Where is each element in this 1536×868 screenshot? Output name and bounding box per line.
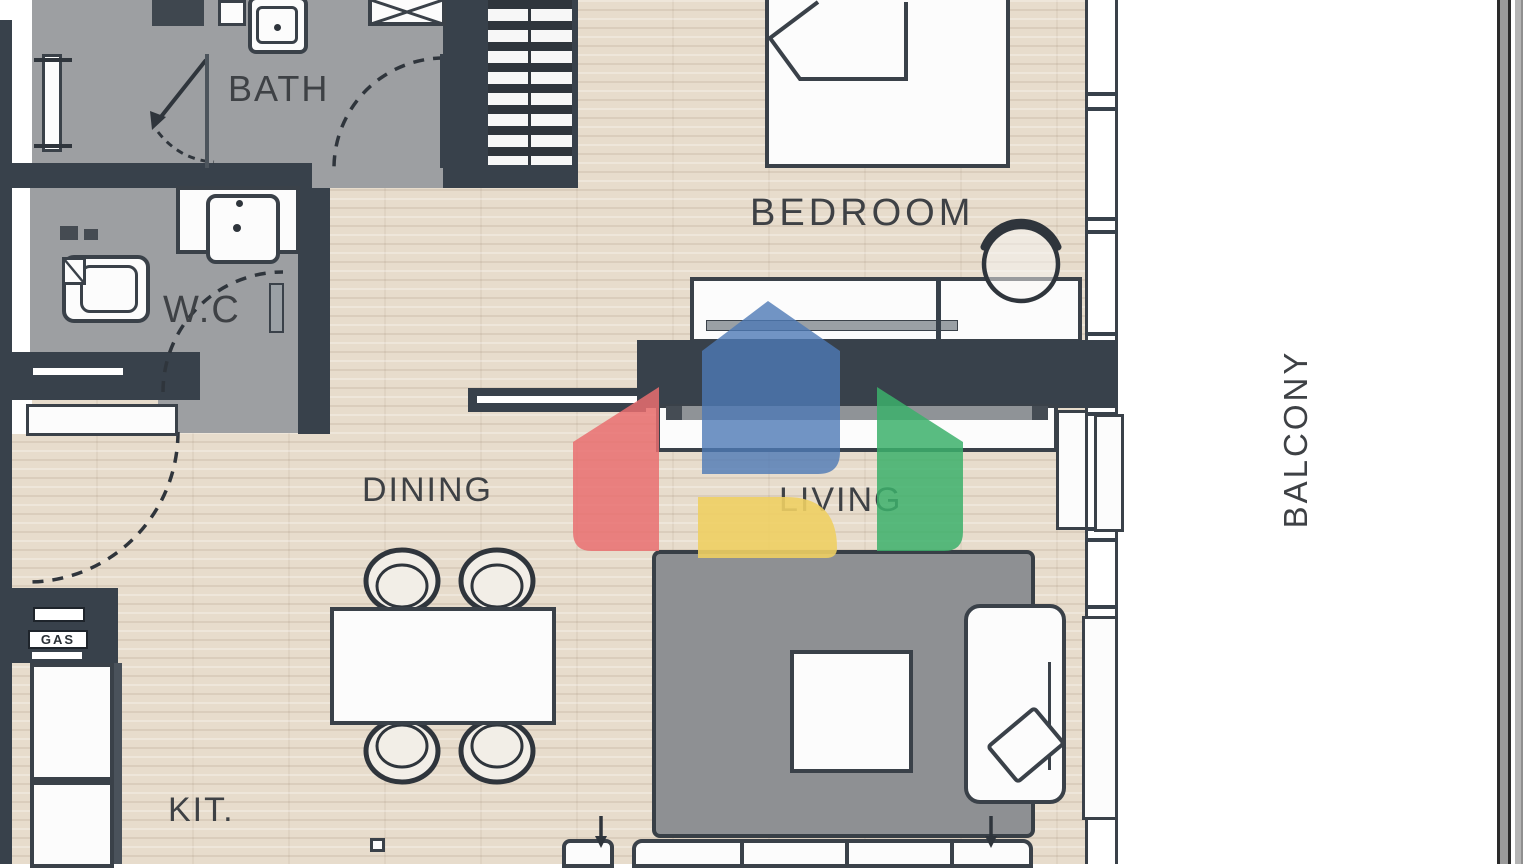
bed bbox=[765, 0, 1010, 168]
radiator-bar bbox=[34, 144, 72, 148]
bath-door-leaf bbox=[440, 54, 447, 168]
toilet-bowl bbox=[80, 265, 138, 313]
entry-shelf bbox=[33, 368, 123, 375]
sofa-cushion-seam bbox=[845, 843, 849, 868]
wc-flush-button bbox=[60, 226, 78, 240]
wall-entry bbox=[0, 352, 200, 400]
entry-door-leaf bbox=[26, 404, 178, 436]
wardrobe-rod bbox=[706, 320, 958, 331]
balcony-railing bbox=[1521, 0, 1523, 864]
wc-door-leaf bbox=[269, 283, 284, 333]
tv-screen-end bbox=[1032, 406, 1048, 420]
towel-radiator bbox=[42, 54, 62, 152]
gas-box: GAS bbox=[28, 630, 88, 649]
floor-plan: GAS BATH W.C BEDROOM DINING LIVING KIT. … bbox=[0, 0, 1536, 864]
window-mullion bbox=[1085, 107, 1118, 111]
tv-screen bbox=[666, 406, 1048, 420]
closet-divider bbox=[528, 0, 531, 165]
fridge bbox=[30, 663, 114, 781]
half-wall-shelf bbox=[477, 396, 637, 403]
sliding-door-panel bbox=[1094, 414, 1124, 532]
shower-partition bbox=[205, 54, 209, 168]
room-label-kitchen: KIT. bbox=[168, 791, 235, 830]
wall-bath-right bbox=[443, 0, 490, 188]
window-mullion bbox=[1085, 217, 1118, 221]
bath-accessory bbox=[218, 0, 246, 26]
wardrobe-desk bbox=[690, 277, 1082, 343]
wc-sink bbox=[206, 194, 280, 264]
window-mullion bbox=[1085, 332, 1118, 336]
dining-table bbox=[330, 607, 556, 725]
window-mullion bbox=[1085, 92, 1118, 96]
wall-closet-bottom bbox=[488, 163, 578, 188]
window-mullion bbox=[1085, 230, 1118, 234]
sliding-door-panel bbox=[1082, 616, 1118, 820]
room-label-wc: W.C bbox=[163, 289, 241, 332]
room-label-balcony: BALCONY bbox=[1277, 339, 1315, 539]
wardrobe-divider bbox=[936, 277, 941, 343]
wall-left bbox=[0, 20, 12, 864]
shower-tray bbox=[368, 0, 446, 26]
wall-wc-right bbox=[298, 188, 330, 434]
radiator-bar bbox=[34, 58, 72, 62]
wall-bath-wc bbox=[0, 163, 312, 188]
kitchen-hob bbox=[33, 607, 85, 622]
wc-flush-button bbox=[84, 229, 98, 240]
floor-outlet bbox=[370, 838, 385, 852]
bath-cabinet bbox=[152, 0, 204, 26]
toilet-tank bbox=[62, 257, 86, 285]
window-mullion bbox=[1085, 605, 1118, 609]
exterior-gap bbox=[0, 0, 32, 20]
window-mullion bbox=[1085, 538, 1118, 542]
tv-wall bbox=[637, 340, 1118, 408]
faucet-dot bbox=[236, 200, 243, 207]
room-label-bedroom: BEDROOM bbox=[750, 192, 974, 235]
room-label-living: LIVING bbox=[779, 481, 902, 520]
balcony-railing bbox=[1500, 0, 1508, 864]
room-label-bath: BATH bbox=[228, 68, 329, 110]
sofa-cushion-seam bbox=[950, 843, 954, 868]
coffee-table bbox=[790, 650, 913, 773]
sofa-cushion-seam bbox=[740, 843, 744, 868]
faucet-dot bbox=[274, 24, 281, 31]
sliding-door-panel bbox=[1056, 410, 1088, 530]
tv-screen-end bbox=[666, 406, 682, 420]
balcony-railing bbox=[1508, 0, 1511, 864]
drain-dot bbox=[233, 224, 241, 232]
gas-label: GAS bbox=[41, 632, 75, 647]
room-label-dining: DINING bbox=[362, 471, 493, 510]
kitchen-cabinet bbox=[30, 781, 114, 868]
kitchen-shelf bbox=[32, 652, 82, 659]
